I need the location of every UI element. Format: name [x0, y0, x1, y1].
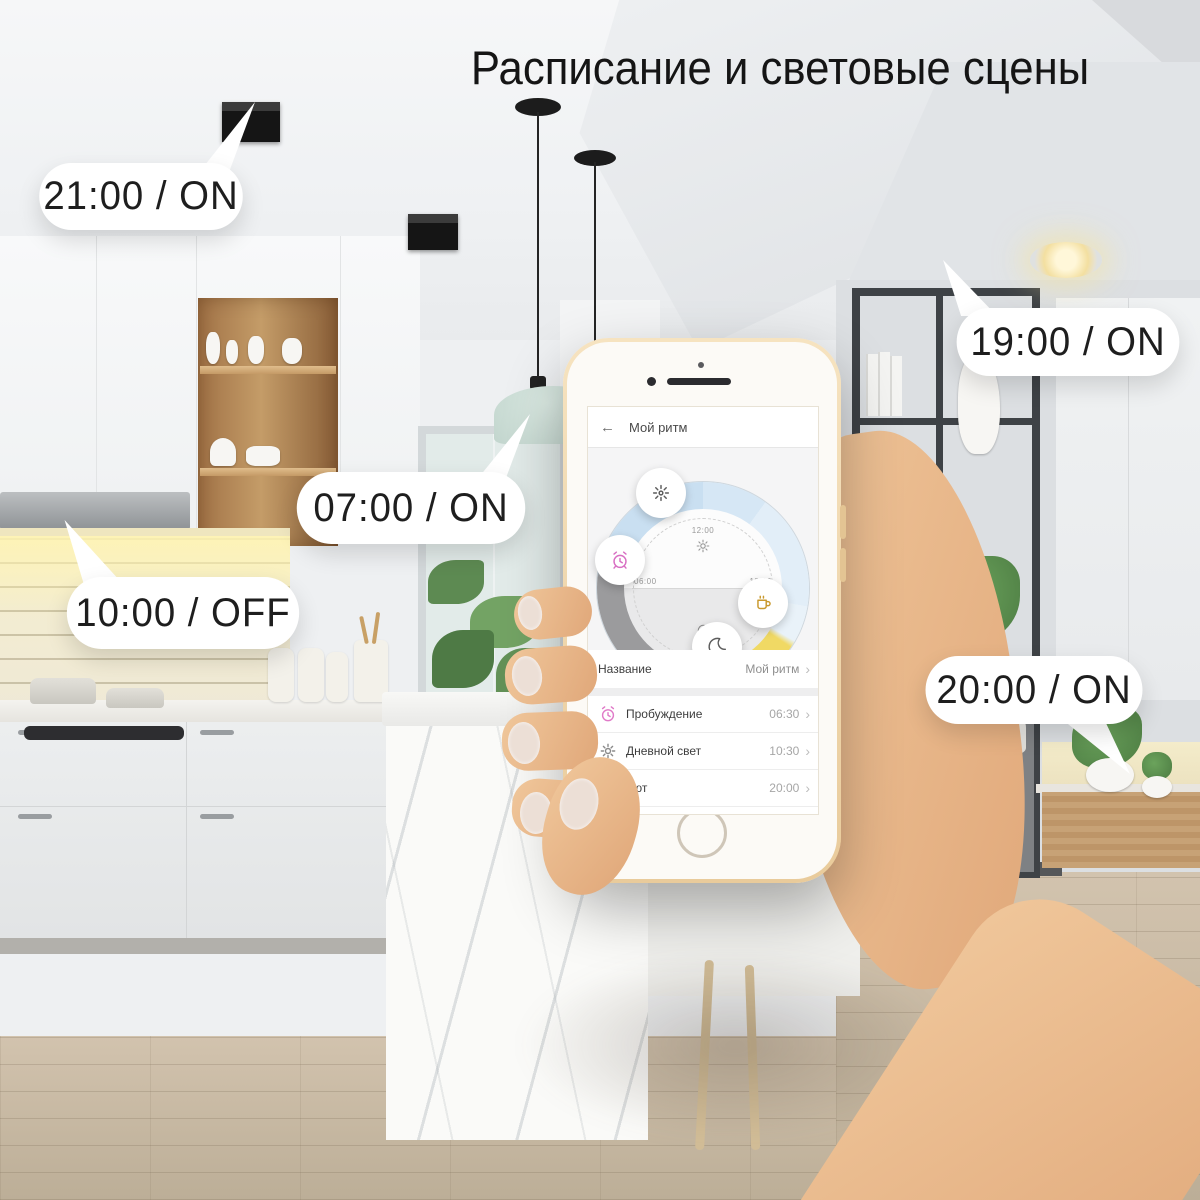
dial-label-noon: 12:00 [692, 526, 715, 535]
scene-row-wake[interactable]: Пробуждение 06:30 › [588, 696, 818, 733]
vase [206, 332, 220, 364]
chevron-right-icon: › [805, 743, 810, 759]
phone-camera [647, 377, 656, 386]
wake-up-scene-button[interactable] [595, 535, 645, 585]
pot [30, 678, 96, 704]
callout-10-00-off: 10:00 / OFF [67, 577, 299, 649]
page-title: Расписание и световые сцены [427, 40, 1134, 95]
callout-19-00-on: 19:00 / ON [957, 308, 1180, 376]
plant [428, 560, 484, 604]
sideboard [1042, 792, 1200, 868]
callout-21-00-on: 21:00 / ON [39, 163, 243, 230]
app-title: Мой ритм [629, 420, 687, 435]
chevron-right-icon: › [805, 661, 810, 677]
dial-label-morning: 06:00 [634, 577, 657, 586]
name-label: Название [598, 662, 652, 676]
home-button[interactable] [677, 808, 727, 858]
promo-image: ← Мой ритм 12:00 06:00 18:00 00:00 [0, 0, 1200, 1200]
sun-small-icon [696, 539, 710, 558]
phone-speaker [667, 378, 731, 385]
name-value: Мой ритм [745, 662, 799, 676]
callout-20-00-on: 20:00 / ON [926, 656, 1143, 724]
alarm-clock-icon [598, 704, 618, 724]
range-hood [0, 492, 190, 530]
chevron-right-icon: › [805, 780, 810, 796]
canister [268, 648, 294, 702]
rhythm-name-row[interactable]: Название Мой ритм › [588, 650, 818, 688]
lower-cabinets [0, 722, 394, 938]
recessed-ceiling-light [1030, 242, 1102, 278]
bright-sun-scene-button[interactable] [636, 468, 686, 518]
app-header: ← Мой ритм [588, 407, 818, 448]
phone-screen: ← Мой ритм 12:00 06:00 18:00 00:00 [588, 407, 818, 814]
back-arrow-icon[interactable]: ← [600, 419, 615, 436]
ceiling-cube-light-2 [408, 214, 458, 250]
callout-07-00-on: 07:00 / ON [297, 472, 525, 544]
chevron-right-icon: › [805, 706, 810, 722]
books [866, 354, 878, 416]
volume-button [840, 505, 846, 539]
cooktop [24, 726, 184, 740]
cozy-scene-button[interactable] [738, 578, 788, 628]
